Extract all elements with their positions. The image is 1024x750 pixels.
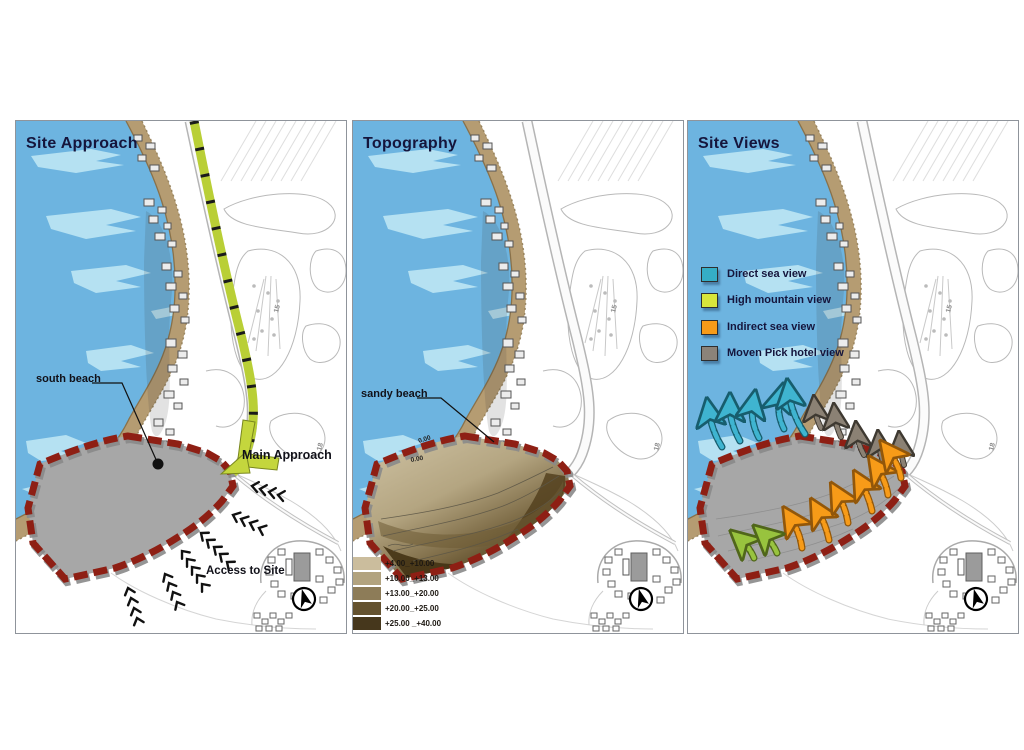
south-beach-dot (153, 459, 164, 470)
panel-site-views: Site Views Direct sea view High mountain… (687, 120, 1019, 634)
site-area (28, 436, 235, 582)
legend-row: +25.00 _+40.00 (353, 617, 441, 630)
page-title-site-views: Site Views (698, 135, 780, 153)
legend-row: Moven Pick hotel view (701, 346, 844, 360)
elevation-range: +13.00_+20.00 (385, 589, 439, 598)
site-area (700, 436, 907, 582)
view-label: Moven Pick hotel view (727, 347, 844, 359)
topography-legend: +4.00_+10.00 +10.00_+13.00 +13.00_+20.00… (353, 557, 441, 632)
view-color-swatch (701, 293, 718, 308)
site-views-map (688, 121, 1018, 633)
canvas: Site Approach south beach Main Approach … (0, 0, 1024, 750)
access-to-site-label: Access to Site (206, 565, 285, 577)
legend-row: +20.00_+25.00 (353, 602, 441, 615)
elevation-range: +20.00_+25.00 (385, 604, 439, 613)
page-title-topography: Topography (363, 135, 457, 153)
view-color-swatch (701, 267, 718, 282)
legend-row: Indirect sea view (701, 320, 844, 334)
site-views-legend: Direct sea view High mountain view Indir… (701, 267, 844, 372)
elevation-swatch (353, 587, 381, 600)
view-color-swatch (701, 346, 718, 361)
page-title-site-approach: Site Approach (26, 135, 138, 153)
elevation-swatch (353, 617, 381, 630)
view-label: Indirect sea view (727, 321, 815, 333)
legend-row: +4.00_+10.00 (353, 557, 441, 570)
elevation-range: +10.00_+13.00 (385, 574, 439, 583)
sandy-beach-label: sandy beach (361, 388, 428, 400)
elevation-swatch (353, 602, 381, 615)
main-approach-arrow-icon (221, 420, 279, 474)
south-beach-label: south beach (36, 373, 101, 385)
legend-row: +13.00_+20.00 (353, 587, 441, 600)
elevation-swatch (353, 557, 381, 570)
legend-row: High mountain view (701, 293, 844, 307)
main-approach-label: Main Approach (242, 448, 332, 462)
elevation-range: +4.00_+10.00 (385, 559, 434, 568)
elevation-range: +25.00 _+40.00 (385, 619, 441, 628)
view-color-swatch (701, 320, 718, 335)
view-label: High mountain view (727, 294, 831, 306)
legend-row: Direct sea view (701, 267, 844, 281)
view-label: Direct sea view (727, 268, 807, 280)
panel-site-approach: Site Approach south beach Main Approach … (15, 120, 347, 634)
elevation-swatch (353, 572, 381, 585)
panel-topography: 0.00 0.00 Topography sandy beach +4.00_+… (352, 120, 684, 634)
legend-row: +10.00_+13.00 (353, 572, 441, 585)
